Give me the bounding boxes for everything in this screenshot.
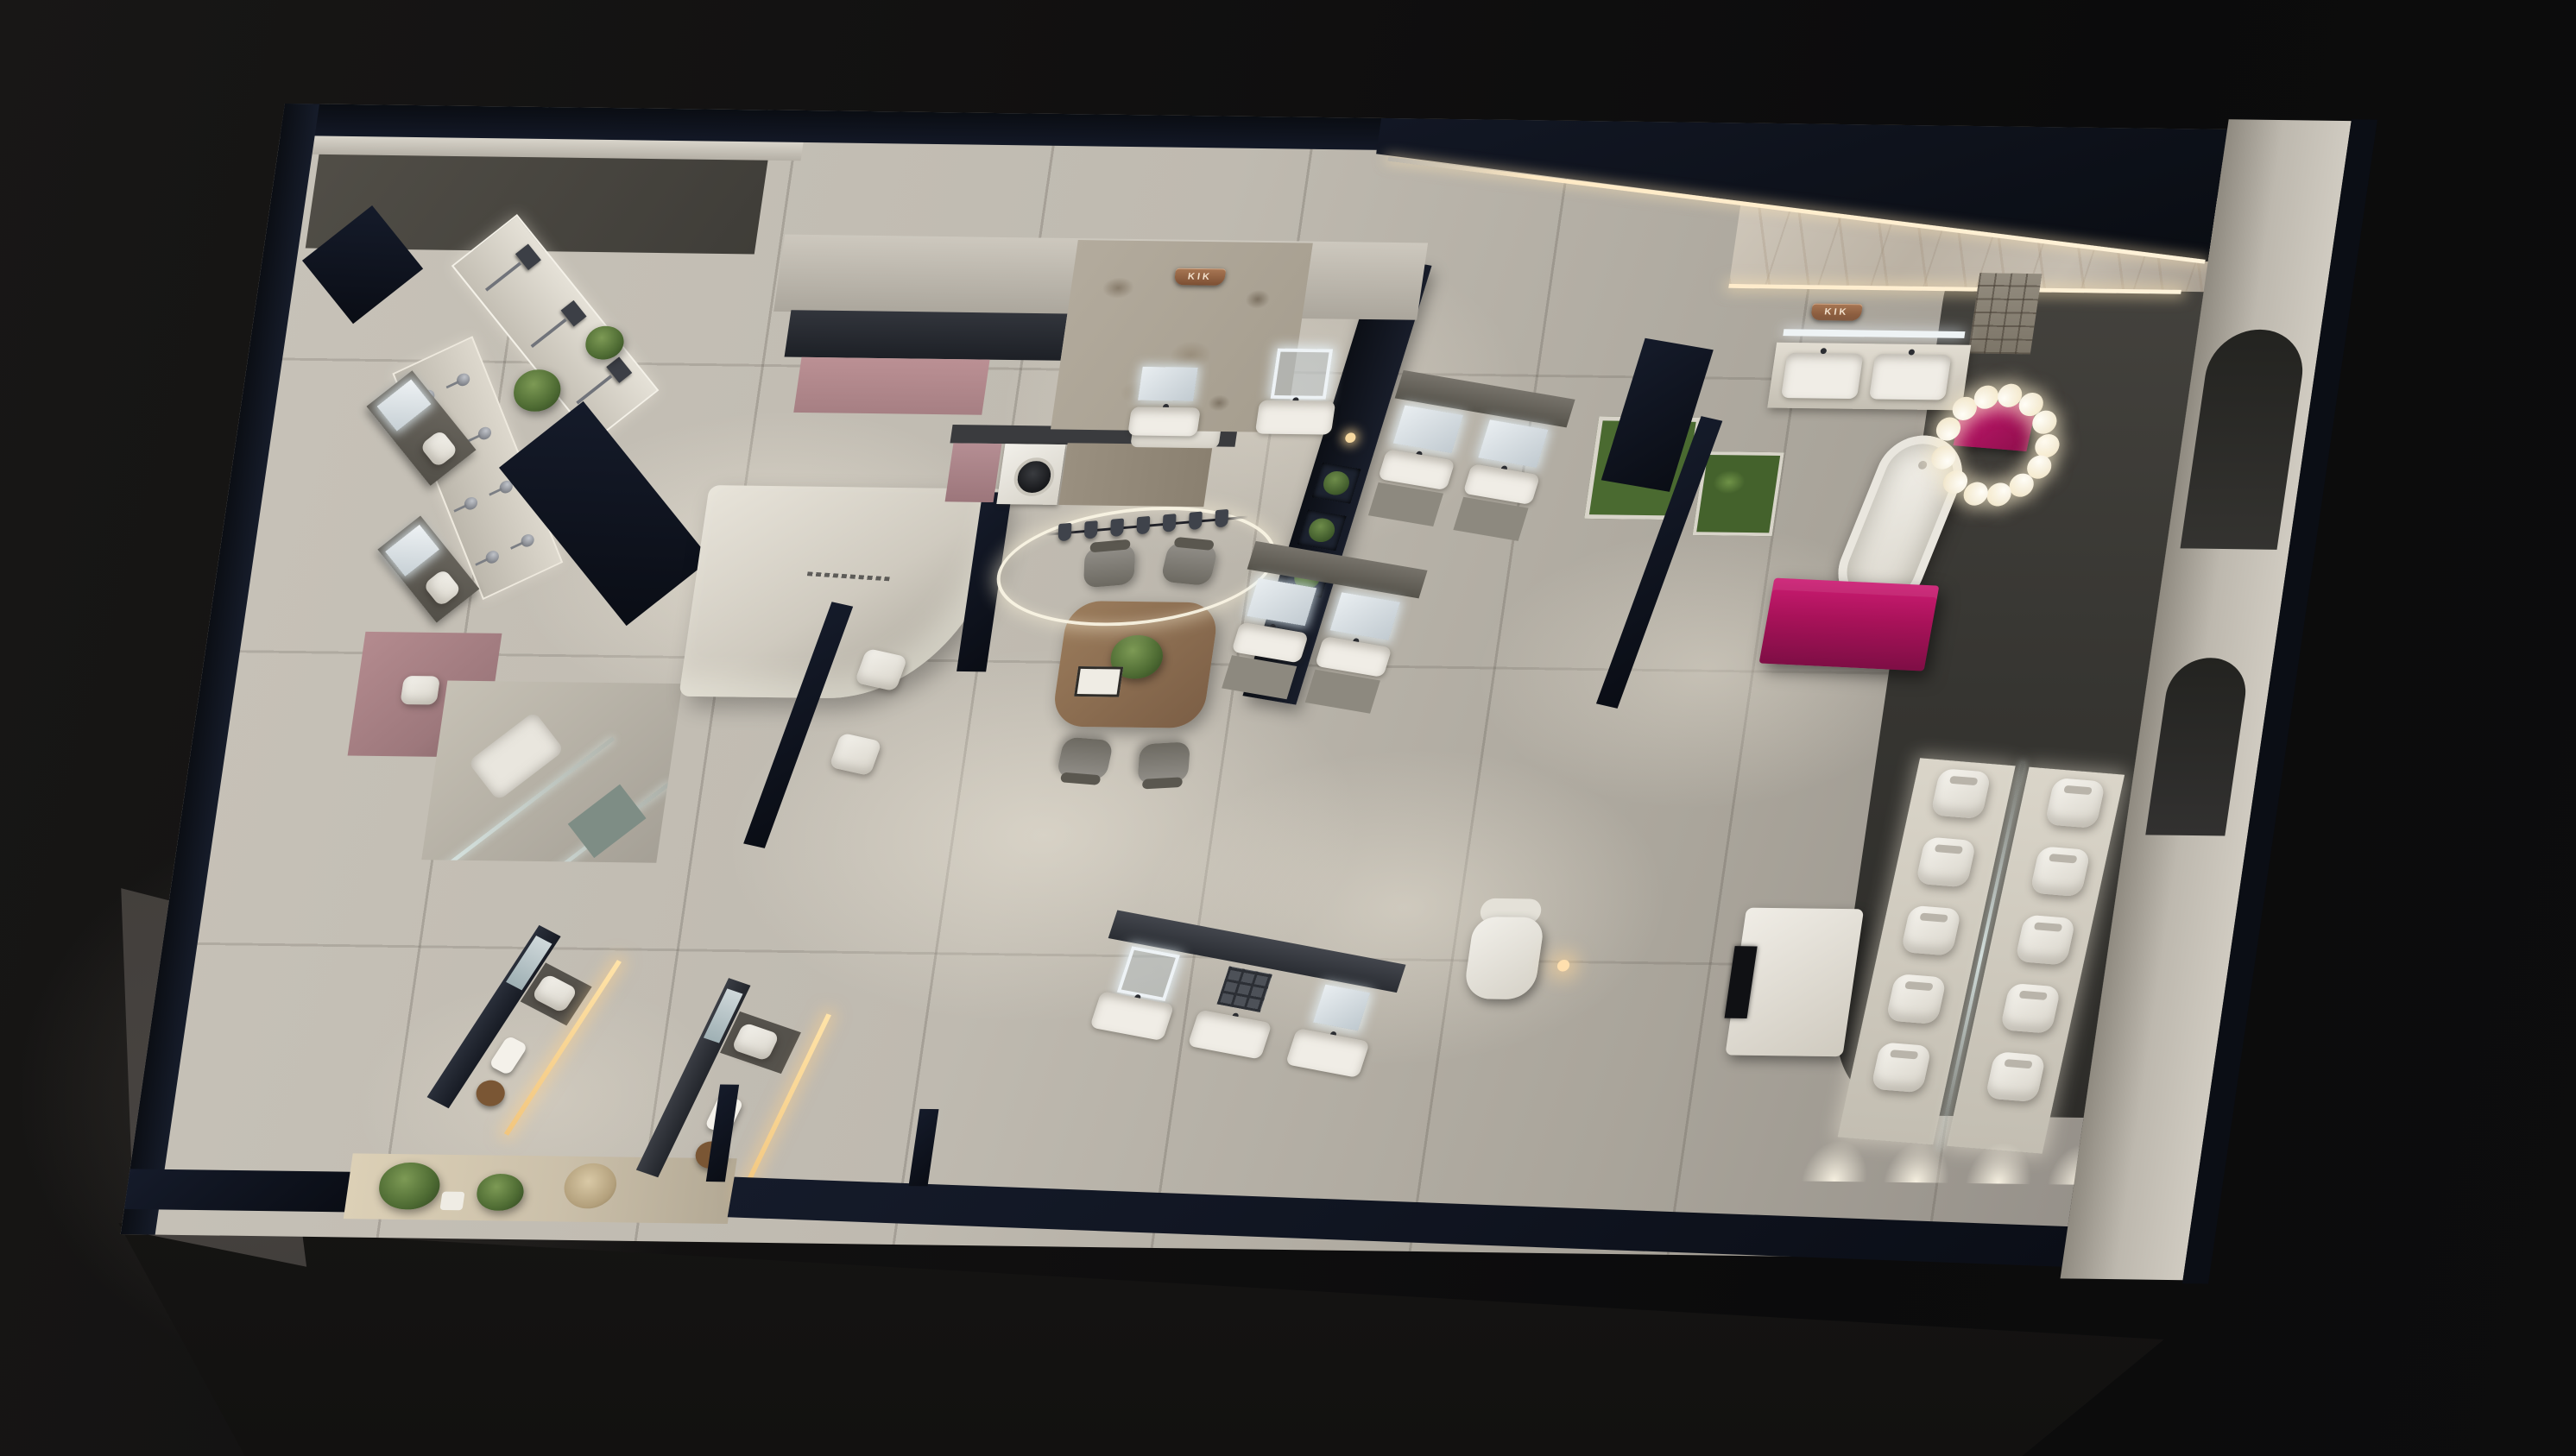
wash-basin [1781,353,1864,400]
pink-wall-panel [793,357,989,415]
lit-mirror [1478,419,1548,468]
magenta-display-cabinet [1759,578,1940,671]
lit-mirror [1330,592,1400,640]
hanging-cup [1189,512,1203,531]
display-toilet [1999,983,2061,1034]
pendant-light [1344,432,1357,443]
vanity-cabinet [1453,497,1528,541]
wash-basin [1285,1028,1370,1078]
arch-opening [2181,329,2309,550]
glass-shower-room [421,681,682,863]
lit-mirror [1313,985,1370,1031]
hanging-cup [1215,509,1228,528]
floor-light-pool [1802,1141,1872,1182]
bush-plant [474,1174,526,1211]
floor-light-pool [1884,1142,1954,1183]
reception-desk-lettering [807,571,890,581]
faucet-display-item [463,495,479,512]
chair-seat [1462,917,1545,999]
shower-column [511,287,599,369]
brand-sign: KIK [1174,268,1227,286]
shelf-niche-plant [1312,463,1361,504]
white-planter [439,1192,464,1211]
lit-mirror [1247,578,1316,627]
display-toilet [1916,836,1977,887]
chandelier-bubble [2033,434,2061,458]
vanity-unit [1118,367,1214,457]
wash-basin [1255,400,1336,435]
floorplan: KIK [121,104,2227,1260]
faucet-display-item [477,425,493,442]
floor-light-pool [1966,1143,2036,1184]
dining-chair [1137,741,1190,785]
dark-shelf-band [785,310,1068,361]
shower-column [466,230,554,312]
display-toilet [2044,778,2106,829]
hanging-cup [1084,520,1098,539]
showroom-render: KIK [0,0,2576,1456]
lounge-chair [1458,898,1553,1006]
hanging-cup [1110,518,1124,537]
hanging-cup [1136,516,1150,535]
vanity-cabinet [1368,482,1443,526]
pink-laundry-cabinet [945,443,1002,502]
display-toilet [2015,915,2076,966]
led-mirror-frame [1271,349,1333,400]
display-toilet [1930,768,1992,819]
display-toilet [1985,1051,2046,1102]
towel [489,1035,528,1075]
wash-basin [400,676,440,705]
lit-mirror [1138,367,1198,401]
wash-basin [1127,407,1201,436]
display-toilet [2030,846,2091,897]
wash-basin [423,568,463,607]
wash-basin [420,429,459,468]
lit-mirror [1393,405,1463,453]
chandelier-bubble [1986,481,2012,508]
display-toilet [1885,974,1947,1024]
shelf-niche-plant [1297,509,1347,551]
hanging-cup [1058,523,1072,542]
vanity-cabinet [1222,655,1297,699]
lit-mirror-strip [1783,329,1965,338]
arch-opening [2145,658,2251,836]
washing-machine [996,444,1065,505]
faucet-display-item [519,532,535,549]
chandelier-bubble [1930,444,1958,472]
bush-plant [376,1163,443,1210]
wash-basin [1187,1010,1272,1060]
shelf-grid [1217,967,1272,1012]
display-niche-grid [1968,273,2042,354]
wash-basin [855,648,908,691]
display-toilet [1871,1042,1932,1093]
faucet-display-item [455,371,471,388]
led-mirror-frame [1117,946,1180,1001]
brand-sign: KIK [1810,304,1863,321]
led-mirror-vanity [1243,346,1357,443]
bottom-wall-cut [124,1169,350,1212]
wood-stool [470,1075,509,1111]
teal-cabinet [568,785,647,858]
pampas-grass [561,1163,620,1208]
hanging-cup [1163,514,1177,533]
media-console [1725,908,1864,1057]
book-tray [1074,666,1123,697]
faucet-display-item [483,548,500,565]
bubble-chandelier [1912,377,2079,514]
vanity-cabinet [1305,670,1380,714]
display-toilet [1900,905,1961,956]
